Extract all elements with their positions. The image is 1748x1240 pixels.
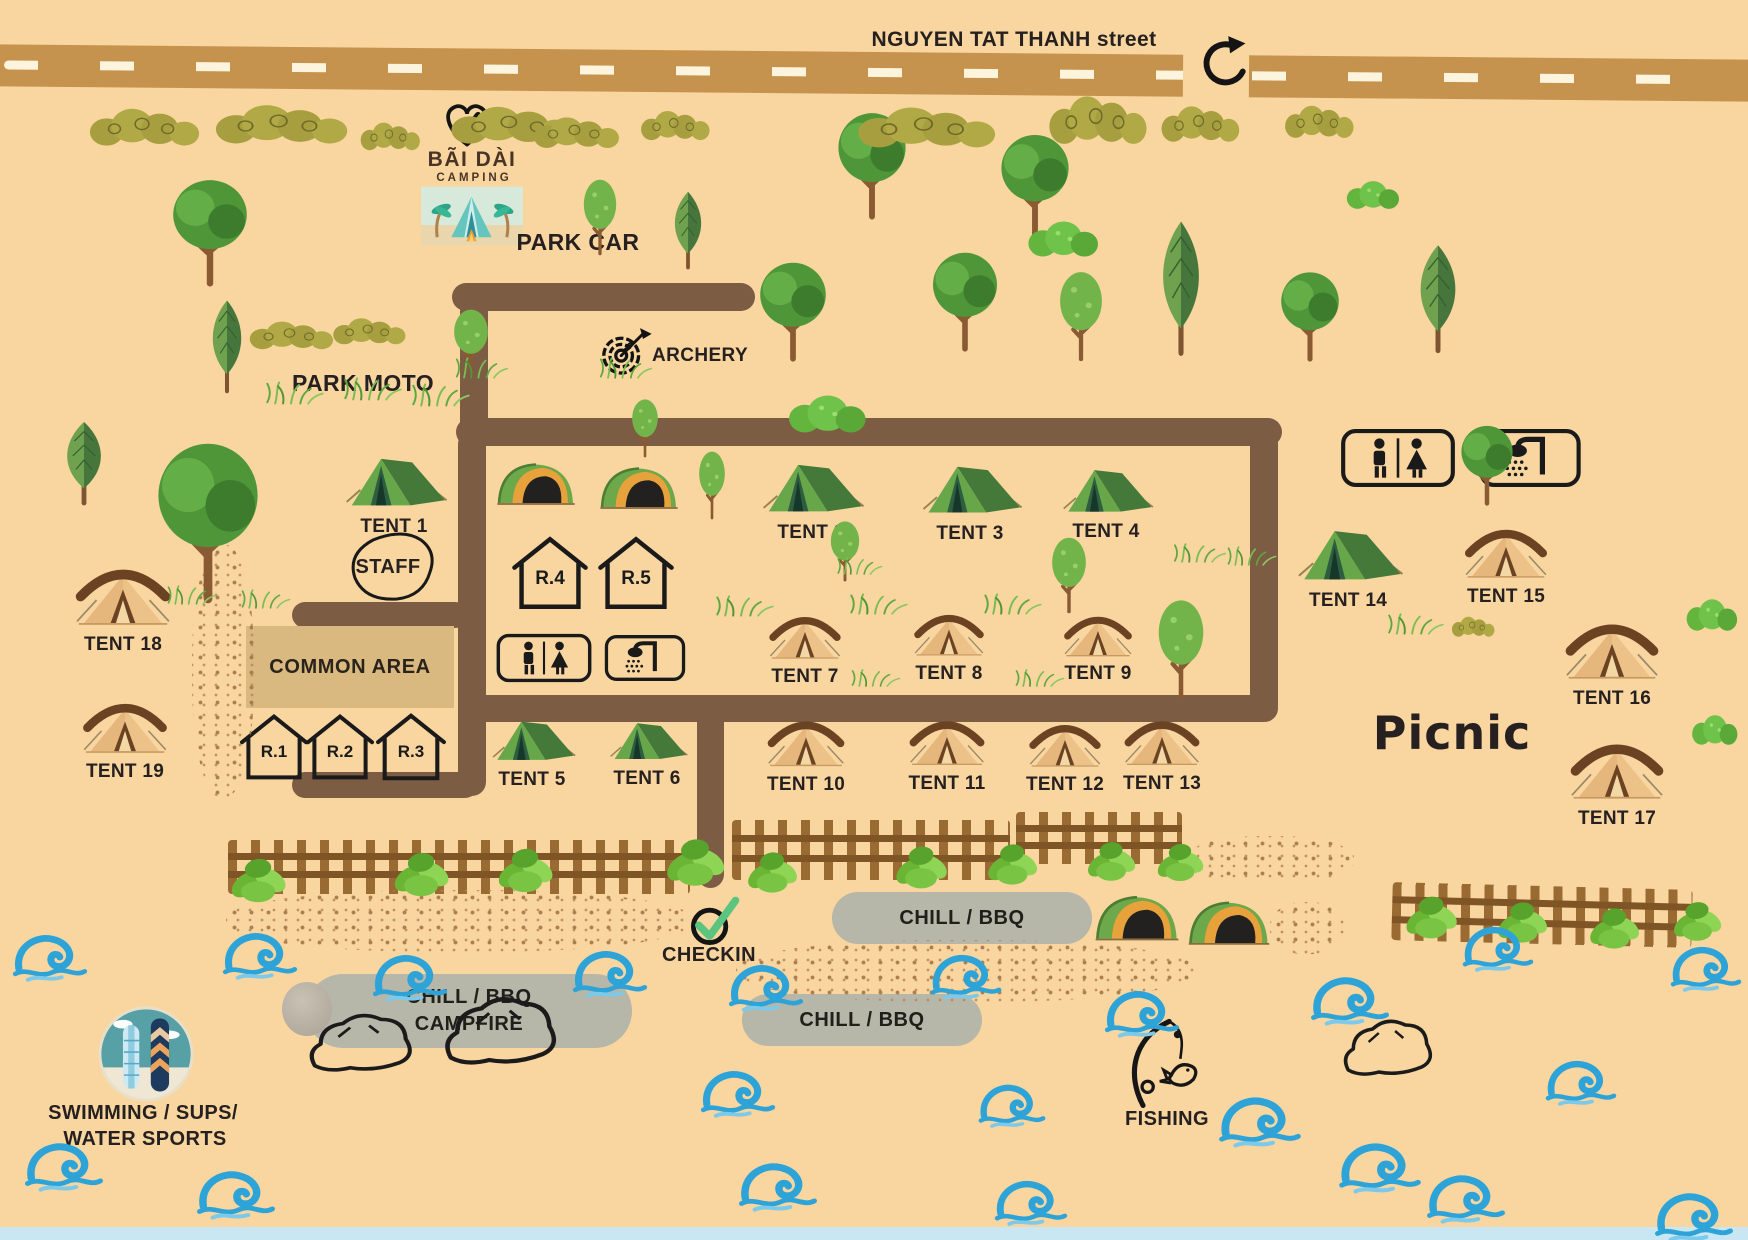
bush-icon [1022,220,1102,258]
wave-icon [1668,942,1744,994]
wave-icon [1424,1170,1508,1226]
swimming-label-line1: SWIMMING / SUPS/ [48,1102,238,1125]
shrub-icon [1668,896,1726,946]
shrub-icon [388,846,454,902]
picnic-label: Picnic [1373,706,1532,760]
scrub-icon [1450,612,1496,638]
shrub-icon [982,838,1042,890]
u-turn-arrow-icon [1192,26,1250,88]
dome-tent [1185,894,1273,950]
tree-oval-icon [1050,270,1112,362]
grass-icon [408,382,474,408]
dome-tent [494,456,578,510]
rock-icon [303,1006,421,1078]
common-area-label: COMMON AREA [269,656,430,679]
tree-oval-icon [1148,598,1214,700]
tent-14-label: TENT 14 [1290,590,1406,612]
tent-10-label: TENT 10 [763,774,849,796]
shrub-icon [1584,902,1644,954]
shrub-icon [742,846,802,898]
wave-icon [22,1138,106,1194]
wave-icon [1543,1056,1619,1108]
bush-icon [1688,714,1740,746]
tree-round-icon [146,436,270,604]
tent-7: TENT 7 [765,612,845,688]
staff-label: STAFF [356,556,421,579]
street-lane-dashes [4,60,1703,84]
tent-17-label: TENT 17 [1565,808,1669,830]
wave-icon [928,950,1004,1002]
wave-icon [1460,922,1536,974]
tent-1-label: TENT 1 [338,516,450,538]
scrub-icon [358,116,422,152]
grass-icon [980,592,1046,616]
tent-14: TENT 14 [1290,524,1406,612]
wave-icon [1336,1138,1424,1196]
bush-icon [782,394,870,434]
grass-icon [834,556,886,576]
chill-bbq-pill: CHILL / BBQ [832,892,1092,944]
tree-leaf-icon [1405,240,1471,354]
grass-icon [848,668,904,688]
tent-15-label: TENT 15 [1460,586,1552,608]
bush-icon [1682,598,1740,632]
grass-icon [452,356,512,380]
tent-13-label: TENT 13 [1120,773,1204,795]
room-r2: R.2 [304,708,376,786]
street-label: NGUYEN TAT THANH street [872,28,1157,52]
tree-oval-icon [626,398,664,458]
tent-5: TENT 5 [486,716,578,791]
tent-12-label: TENT 12 [1025,774,1105,796]
grass-icon [846,592,912,616]
tent-10: TENT 10 [763,716,849,796]
common-area: COMMON AREA [246,626,454,708]
shrub-icon [225,852,291,908]
tent-13: TENT 13 [1120,716,1204,795]
room-r4: R.4 [510,526,590,620]
sand-patch [1186,836,1354,884]
restroom-icon [1338,428,1458,488]
tent-17: TENT 17 [1565,738,1669,830]
tent-15: TENT 15 [1460,524,1552,608]
wave-icon [220,928,300,982]
room-r3: R.3 [374,708,448,786]
scrub-icon [1158,98,1242,144]
tree-leaf-icon [663,188,713,270]
shrub-icon [1152,838,1208,886]
scrub-icon [210,96,352,146]
wave-icon [736,1158,820,1214]
bush-icon [1342,180,1402,210]
tent-16: TENT 16 [1560,618,1664,710]
wave-icon [1102,986,1182,1040]
tent-6-label: TENT 6 [604,768,690,790]
fishing-label: FISHING [1125,1108,1209,1131]
tent-3: TENT 3 [915,460,1025,545]
logo-title: BÃI DÀI [428,148,517,172]
wave-icon [1652,1188,1736,1240]
tent-7-label: TENT 7 [765,666,845,688]
street-road [0,44,1748,101]
camping-map: NGUYEN TAT THANH street BÃI DÀI CAMPING … [0,0,1748,1240]
chill-bbq-label: CHILL / BBQ [799,1007,924,1034]
archery-label: ARCHERY [652,345,748,367]
scrub-icon [1045,85,1150,147]
shower-icon [604,633,686,683]
tent-8: TENT 8 [910,610,988,685]
scrub-icon [85,100,203,148]
tent-6: TENT 6 [604,718,690,790]
scrub-icon [246,315,336,351]
tent-11: TENT 11 [905,716,989,795]
surfboards-icon [98,1006,194,1102]
path-park [452,283,755,311]
dome-tent [597,460,681,514]
room-r4-label: R.4 [535,568,565,590]
grass-icon [164,584,220,606]
wave-icon [570,946,650,1000]
tree-round-icon [1274,268,1346,362]
path-right [1250,424,1278,720]
shrub-icon [660,832,730,892]
tree-oval-icon [693,450,731,520]
sea-edge [0,1227,1748,1240]
check-circle-icon [688,896,742,946]
shrub-icon [1400,890,1462,944]
grass-icon [238,588,294,610]
shrub-icon [492,842,558,898]
rock-icon [1338,1012,1440,1082]
wave-icon [992,1176,1070,1228]
wave-icon [726,960,806,1014]
scrub-icon [852,98,1000,150]
chill-bbq-label: CHILL / BBQ [899,905,1024,932]
tent-12: TENT 12 [1025,720,1105,796]
tree-leaf-icon [1147,215,1215,357]
wave-icon [194,1166,278,1222]
tent-9-label: TENT 9 [1060,663,1136,685]
room-r2-label: R.2 [327,742,353,762]
fence [228,840,690,894]
tree-round-icon [925,248,1005,352]
tent-19-label: TENT 19 [78,761,172,783]
wave-icon [10,930,90,984]
wave-icon [976,1080,1048,1130]
room-r5-label: R.5 [621,568,651,590]
dome-tent [1092,888,1182,946]
tent-9: TENT 9 [1060,612,1136,685]
tree-leaf-icon [52,418,116,506]
tent-4: TENT 4 [1056,464,1156,543]
grass-icon [1224,545,1280,567]
grass-icon [596,356,656,380]
grass-icon [1170,542,1230,564]
rock-icon [438,988,566,1072]
room-r5: R.5 [596,526,676,620]
shrub-icon [1082,836,1140,886]
scrub-icon [638,104,712,142]
wave-icon [1216,1092,1304,1150]
grass-icon [340,376,406,402]
tree-oval-icon [576,178,624,256]
scrub-icon [530,110,622,150]
logo-picture [421,186,523,246]
room-r1-label: R.1 [261,742,287,762]
grass-icon [1012,668,1068,688]
shrub-icon [890,840,952,894]
wave-icon [698,1066,778,1120]
tent-1: TENT 1 [338,452,450,538]
tent-16-label: TENT 16 [1560,688,1664,710]
grass-icon [262,380,328,406]
grass-icon [1384,612,1448,636]
tent-5-label: TENT 5 [486,769,578,791]
scrub-icon [1282,98,1356,140]
tree-round-icon [164,175,256,287]
tree-round-icon [752,258,834,362]
tent-11-label: TENT 11 [905,773,989,795]
tent-3-label: TENT 3 [915,523,1025,545]
restroom-icon [494,633,594,683]
tree-round-icon [1455,422,1519,506]
scrub-icon [330,312,408,346]
tent-18-label: TENT 18 [70,634,176,656]
tent-19: TENT 19 [78,698,172,783]
tree-oval-icon [1044,536,1094,614]
grass-icon [712,594,778,618]
room-r3-label: R.3 [398,742,424,762]
tent-8-label: TENT 8 [910,663,988,685]
sand-patch [1270,902,1344,954]
logo-subtitle: CAMPING [436,172,511,184]
